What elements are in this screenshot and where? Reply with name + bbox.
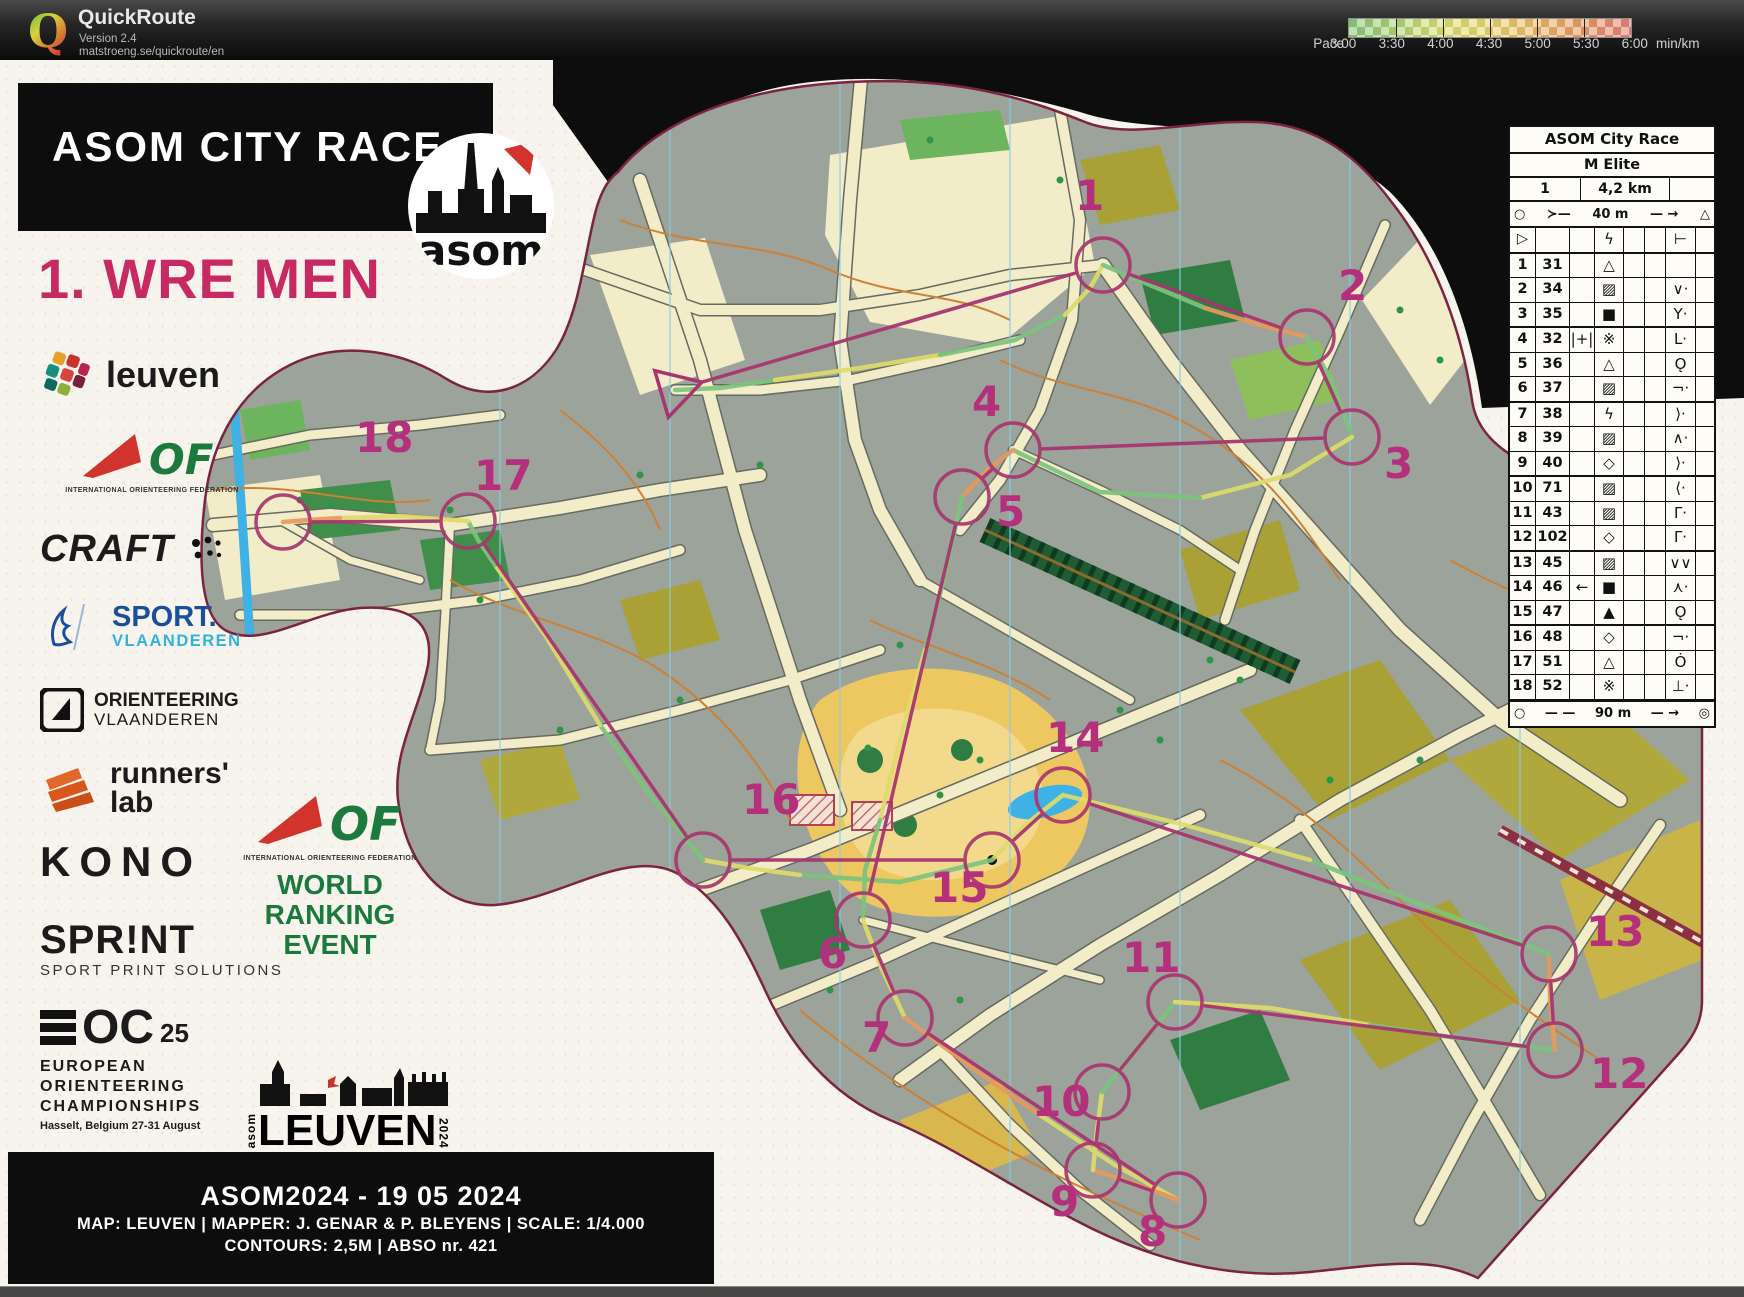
eoc-line-2: ORIENTEERING bbox=[40, 1077, 201, 1097]
pace-tick: 4:00 bbox=[1427, 36, 1453, 51]
sheet-course-length: 4,2 km bbox=[1581, 178, 1670, 200]
app-titlebar: Q QuickRoute Version 2.4 matstroeng.se/q… bbox=[0, 0, 1744, 60]
sheet-cell: 4 bbox=[1510, 328, 1536, 353]
sheet-cell bbox=[1696, 651, 1714, 676]
sheet-cell: 52 bbox=[1536, 675, 1570, 701]
sheet-cell: 7 bbox=[1510, 403, 1536, 428]
sheet-cell: 2 bbox=[1510, 278, 1536, 303]
sheet-cell bbox=[1570, 403, 1595, 428]
sheet-cell bbox=[1624, 502, 1645, 527]
sheet-cell bbox=[1645, 502, 1666, 527]
sheet-course-row: 1 4,2 km bbox=[1510, 178, 1714, 202]
sheet-cell bbox=[1645, 228, 1666, 254]
runners-lab-label-1: runners' bbox=[110, 760, 229, 789]
control-number: 8 bbox=[1138, 1207, 1167, 1256]
sheet-cell bbox=[1696, 254, 1714, 279]
iof-caption: INTERNATIONAL ORIENTEERING FEDERATION bbox=[62, 487, 242, 494]
start-fork-glyph: ≻— bbox=[1547, 207, 1571, 222]
sheet-cell: 38 bbox=[1536, 403, 1570, 428]
sheet-cell bbox=[1645, 278, 1666, 303]
sheet-cell: 16 bbox=[1510, 626, 1536, 651]
leuven-mosaic-icon bbox=[42, 350, 92, 400]
finish-circle-glyph: ○ bbox=[1514, 706, 1525, 721]
sheet-cell bbox=[1624, 254, 1645, 279]
sheet-cell: ← bbox=[1570, 576, 1595, 601]
sheet-cell bbox=[1696, 228, 1714, 254]
sheet-cell: 17 bbox=[1510, 651, 1536, 676]
orienteering-vlaanderen-label-1: ORIENTEERING bbox=[94, 691, 239, 711]
sheet-cell: ▨ bbox=[1595, 477, 1624, 502]
sheet-cell bbox=[1645, 328, 1666, 353]
sponsor-leuven: leuven bbox=[42, 350, 220, 400]
sheet-cell bbox=[1645, 675, 1666, 701]
app-url: matstroeng.se/quickroute/en bbox=[79, 46, 224, 58]
sponsor-runners-lab: runners' lab bbox=[44, 760, 229, 817]
sheet-cell: 10 bbox=[1510, 477, 1536, 502]
sheet-cell: 13 bbox=[1510, 552, 1536, 577]
sheet-cell bbox=[1696, 303, 1714, 329]
sheet-finish-distance-row: ○ — — 90 m — → ◎ bbox=[1510, 701, 1714, 726]
sheet-cell: 14 bbox=[1510, 576, 1536, 601]
eoc-sublabel: Hasselt, Belgium 27-31 August bbox=[40, 1120, 201, 1132]
sheet-cell bbox=[1624, 278, 1645, 303]
leuven-side-asom: asom bbox=[244, 1113, 258, 1148]
sheet-cell bbox=[1570, 254, 1595, 279]
control-number: 4 bbox=[972, 377, 1001, 426]
sheet-cell bbox=[1570, 452, 1595, 478]
sheet-cell: ▨ bbox=[1595, 502, 1624, 527]
sheet-cell: 12 bbox=[1510, 526, 1536, 552]
sheet-cell: ϟ bbox=[1595, 228, 1624, 254]
start-distance-value: 40 m bbox=[1592, 207, 1628, 222]
start-triangle-glyph: △ bbox=[1700, 207, 1710, 222]
course-leg bbox=[1096, 1122, 1098, 1140]
control-number: 15 bbox=[930, 863, 988, 912]
sheet-cell: 43 bbox=[1536, 502, 1570, 527]
sponsor-craft-label: CRAFT bbox=[40, 528, 174, 571]
sheet-cell bbox=[1570, 552, 1595, 577]
event-banner-title: ASOM CITY RACE bbox=[52, 123, 443, 171]
sheet-cell: 8 bbox=[1510, 427, 1536, 452]
app-title: QuickRoute bbox=[78, 6, 196, 30]
leuven-side-2024: 2024 bbox=[436, 1118, 450, 1149]
control-number: 6 bbox=[818, 929, 847, 978]
sheet-cell: ■ bbox=[1595, 576, 1624, 601]
sheet-cell: 47 bbox=[1536, 601, 1570, 627]
sheet-cell: 15 bbox=[1510, 601, 1536, 627]
eoc-line-1: EUROPEAN bbox=[40, 1057, 201, 1077]
finish-arrow-glyph: — → bbox=[1651, 706, 1679, 721]
sheet-cell: ※ bbox=[1595, 675, 1624, 701]
pace-tick: 5:00 bbox=[1524, 36, 1550, 51]
sheet-cell bbox=[1696, 552, 1714, 577]
sheet-cell bbox=[1696, 278, 1714, 303]
sheet-cell bbox=[1624, 477, 1645, 502]
sheet-cell: ▨ bbox=[1595, 427, 1624, 452]
sport-vlaanderen-label-2: VLAANDEREN bbox=[112, 632, 242, 652]
sheet-cell bbox=[1645, 477, 1666, 502]
sponsor-eoc25: OC 25 EUROPEAN ORIENTEERING CHAMPIONSHIP… bbox=[40, 1006, 201, 1132]
start-circle-glyph: ○ bbox=[1514, 207, 1525, 222]
sponsor-iof: OF INTERNATIONAL ORIENTEERING FEDERATION bbox=[62, 432, 242, 494]
sheet-cell: ∧· bbox=[1666, 427, 1696, 452]
sheet-cell bbox=[1570, 675, 1595, 701]
sheet-cell: ϟ bbox=[1595, 403, 1624, 428]
iof-logo-icon: OF bbox=[77, 432, 227, 480]
sheet-cell bbox=[1624, 601, 1645, 627]
sport-vlaanderen-label-1: SPORT. bbox=[112, 603, 242, 632]
map-credits-banner: ASOM2024 - 19 05 2024 MAP: LEUVEN | MAPP… bbox=[8, 1152, 714, 1284]
sheet-cell bbox=[1645, 601, 1666, 627]
sponsor-sport-vlaanderen: SPORT. VLAANDEREN bbox=[40, 598, 242, 656]
sheet-start-distance-row: ○ ≻— 40 m — → △ bbox=[1510, 202, 1714, 228]
finish-distance-value: 90 m bbox=[1595, 706, 1631, 721]
sheet-cell bbox=[1645, 526, 1666, 552]
sponsor-kono: KONO bbox=[40, 838, 202, 886]
sheet-cell bbox=[1570, 502, 1595, 527]
pace-tick-line bbox=[1396, 19, 1397, 37]
sheet-cell: ∨· bbox=[1666, 278, 1696, 303]
sheet-cell bbox=[1696, 675, 1714, 701]
orienteering-vlaanderen-icon bbox=[40, 688, 84, 732]
sheet-cell bbox=[1645, 552, 1666, 577]
sheet-cell: 45 bbox=[1536, 552, 1570, 577]
control-number: 18 bbox=[355, 413, 413, 462]
control-number: 5 bbox=[996, 487, 1025, 536]
sheet-cell: ⟩· bbox=[1666, 403, 1696, 428]
sheet-cell bbox=[1624, 377, 1645, 403]
eoc-line-3: CHAMPIONSHIPS bbox=[40, 1097, 201, 1117]
sheet-cell bbox=[1696, 353, 1714, 378]
sheet-cell: 6 bbox=[1510, 377, 1536, 403]
sheet-cell bbox=[1624, 353, 1645, 378]
pace-tick: 3:00 bbox=[1330, 36, 1356, 51]
control-number: 13 bbox=[1586, 907, 1644, 956]
svg-text:OF: OF bbox=[149, 435, 214, 480]
sheet-cell bbox=[1696, 626, 1714, 651]
wre-line-2: RANKING bbox=[238, 900, 422, 930]
sheet-cell: ⟩· bbox=[1666, 452, 1696, 478]
sheet-cell: 11 bbox=[1510, 502, 1536, 527]
sheet-cell: L· bbox=[1666, 328, 1696, 353]
asom-club-logo: asom bbox=[408, 133, 554, 279]
eoc-25-label: 25 bbox=[160, 1018, 189, 1049]
finish-ring-glyph: ◎ bbox=[1699, 706, 1710, 721]
sheet-title: ASOM City Race bbox=[1510, 127, 1714, 154]
pace-tick: 4:30 bbox=[1476, 36, 1502, 51]
start-arrow-glyph: — → bbox=[1650, 207, 1678, 222]
sheet-cell bbox=[1624, 651, 1645, 676]
sheet-cell: 18 bbox=[1510, 675, 1536, 701]
sheet-cell: ◇ bbox=[1595, 626, 1624, 651]
leuven-city-label: LEUVEN bbox=[258, 1113, 436, 1148]
sheet-cell bbox=[1696, 502, 1714, 527]
sheet-cell: 51 bbox=[1536, 651, 1570, 676]
craft-dots-icon bbox=[188, 535, 222, 565]
sheet-cell: ※ bbox=[1595, 328, 1624, 353]
sheet-cell bbox=[1570, 626, 1595, 651]
sheet-cell: △ bbox=[1595, 651, 1624, 676]
course-leg bbox=[1551, 984, 1553, 1020]
sheet-cell bbox=[1570, 477, 1595, 502]
sheet-cell: 31 bbox=[1536, 254, 1570, 279]
pace-tick: 6:00 bbox=[1622, 36, 1648, 51]
sheet-cell bbox=[1570, 228, 1595, 254]
sheet-cell: △ bbox=[1595, 254, 1624, 279]
credits-event-date: ASOM2024 - 19 05 2024 bbox=[200, 1181, 521, 1212]
svg-text:OF: OF bbox=[330, 797, 401, 848]
sheet-cell: ◇ bbox=[1595, 452, 1624, 478]
sheet-cell: Y· bbox=[1666, 303, 1696, 329]
sheet-cell bbox=[1645, 377, 1666, 403]
sheet-cell bbox=[1645, 353, 1666, 378]
sheet-cell: △ bbox=[1595, 353, 1624, 378]
control-number: 16 bbox=[742, 775, 800, 824]
sheet-cell: 102 bbox=[1536, 526, 1570, 552]
sheet-cell bbox=[1570, 303, 1595, 329]
sheet-cell bbox=[1696, 526, 1714, 552]
sheet-cell: 46 bbox=[1536, 576, 1570, 601]
sheet-cell bbox=[1624, 626, 1645, 651]
sheet-cell bbox=[1645, 254, 1666, 279]
pace-tick-labels: 3:003:304:004:305:005:306:00 bbox=[1330, 36, 1648, 51]
credits-map-info: MAP: LEUVEN | MAPPER: J. GENAR & P. BLEY… bbox=[77, 1215, 645, 1234]
control-number: 12 bbox=[1590, 1049, 1648, 1098]
sheet-cell: ■ bbox=[1595, 303, 1624, 329]
eoc-oc-label: OC bbox=[82, 1008, 154, 1049]
asom-skyline-icon: asom bbox=[408, 133, 554, 279]
sheet-cell: 34 bbox=[1536, 278, 1570, 303]
app-version: Version 2.4 bbox=[79, 33, 137, 45]
sheet-cell: 36 bbox=[1536, 353, 1570, 378]
pace-unit: min/km bbox=[1656, 36, 1700, 51]
sheet-cell bbox=[1696, 328, 1714, 353]
sheet-cell bbox=[1696, 377, 1714, 403]
sheet-cell: Ǫ bbox=[1666, 601, 1696, 627]
sheet-cell: ⟨· bbox=[1666, 477, 1696, 502]
sheet-cell bbox=[1645, 452, 1666, 478]
sheet-cell bbox=[1624, 675, 1645, 701]
pace-tick-line bbox=[1584, 19, 1585, 37]
sheet-cell: 1 bbox=[1510, 254, 1536, 279]
wre-line-3: EVENT bbox=[238, 930, 422, 960]
sheet-cell bbox=[1645, 303, 1666, 329]
sheet-cell bbox=[1645, 403, 1666, 428]
sponsor-craft: CRAFT bbox=[40, 528, 222, 571]
window-bottom-edge bbox=[0, 1286, 1744, 1297]
sheet-cell bbox=[1624, 526, 1645, 552]
sheet-cell bbox=[1645, 626, 1666, 651]
pace-tick: 3:30 bbox=[1379, 36, 1405, 51]
pace-tick-line bbox=[1443, 19, 1444, 37]
sheet-cell bbox=[1666, 254, 1696, 279]
sheet-cell bbox=[1536, 228, 1570, 254]
sheet-cell: 3 bbox=[1510, 303, 1536, 329]
wre-line-1: WORLD bbox=[238, 870, 422, 900]
pace-legend: Pace 3:003:304:004:305:005:306:00 min/km bbox=[1260, 0, 1730, 60]
sheet-cell: Ȯ bbox=[1666, 651, 1696, 676]
sheet-cell bbox=[1570, 526, 1595, 552]
pace-gradient-bar bbox=[1348, 18, 1632, 38]
runners-lab-label-2: lab bbox=[110, 789, 229, 818]
sprint-sublabel: SPORT PRINT SOLUTIONS bbox=[40, 962, 283, 979]
sheet-cell bbox=[1696, 576, 1714, 601]
control-number: 1 bbox=[1075, 171, 1104, 220]
sheet-cell bbox=[1570, 377, 1595, 403]
sheet-cell bbox=[1696, 452, 1714, 478]
sheet-cell bbox=[1624, 552, 1645, 577]
control-description-sheet: ASOM City Race M Elite 1 4,2 km ○ ≻— 40 … bbox=[1508, 125, 1716, 728]
sheet-cell: 37 bbox=[1536, 377, 1570, 403]
sheet-cell bbox=[1624, 427, 1645, 452]
sheet-cell bbox=[1624, 403, 1645, 428]
sheet-class: M Elite bbox=[1510, 154, 1714, 178]
sheet-cell bbox=[1696, 427, 1714, 452]
map-document-page: 123456789101112131415161718 ASOM CITY RA… bbox=[0, 60, 1744, 1296]
sheet-cell bbox=[1624, 303, 1645, 329]
sheet-cell: ▲ bbox=[1595, 601, 1624, 627]
sheet-cell: ∨∨ bbox=[1666, 552, 1696, 577]
leuven-skyline-icon bbox=[244, 1058, 456, 1108]
sheet-cell: ▨ bbox=[1595, 552, 1624, 577]
finish-dash-glyph: — — bbox=[1545, 706, 1576, 721]
sheet-cell: ⋏· bbox=[1666, 576, 1696, 601]
control-number: 10 bbox=[1032, 1077, 1090, 1126]
sheet-cell bbox=[1624, 576, 1645, 601]
sheet-cell bbox=[1645, 651, 1666, 676]
sheet-cell: 40 bbox=[1536, 452, 1570, 478]
leuven-2024-logo: asom LEUVEN 2024 bbox=[244, 1058, 456, 1148]
credits-contours-info: CONTOURS: 2,5M | ABSO nr. 421 bbox=[224, 1237, 497, 1256]
eoc-bars-icon bbox=[40, 1006, 76, 1049]
sheet-cell: ¬· bbox=[1666, 626, 1696, 651]
sheet-cell: ⊥· bbox=[1666, 675, 1696, 701]
sheet-cell bbox=[1624, 228, 1645, 254]
svg-text:Q: Q bbox=[28, 5, 68, 57]
sheet-course-number: 1 bbox=[1510, 178, 1581, 200]
course-leg bbox=[313, 521, 438, 522]
sponsor-orienteering-vlaanderen: ORIENTEERING VLAANDEREN bbox=[40, 688, 239, 732]
sheet-control-rows: ▷ϟ⊢131△234▨∨·335■Y·432|+|※L·536△Ǫ637▨¬·7… bbox=[1510, 228, 1714, 701]
pace-tick-line bbox=[1490, 19, 1491, 37]
sheet-cell: ⊢ bbox=[1666, 228, 1696, 254]
runners-lab-icon bbox=[44, 766, 94, 812]
sheet-course-climb bbox=[1670, 178, 1714, 200]
sheet-cell: 71 bbox=[1536, 477, 1570, 502]
control-number: 3 bbox=[1384, 439, 1413, 488]
sheet-cell: 48 bbox=[1536, 626, 1570, 651]
control-number: 14 bbox=[1046, 713, 1104, 762]
iof-big-caption: INTERNATIONAL ORIENTEERING FEDERATION bbox=[238, 855, 422, 862]
sheet-cell bbox=[1624, 328, 1645, 353]
iof-big-logo-icon: OF bbox=[250, 792, 410, 848]
pace-tick-line bbox=[1537, 19, 1538, 37]
quickroute-logo-icon: Q bbox=[26, 5, 72, 57]
sheet-cell: Γ· bbox=[1666, 526, 1696, 552]
sheet-cell bbox=[1570, 278, 1595, 303]
control-number: 9 bbox=[1050, 1177, 1079, 1226]
sheet-cell bbox=[1696, 403, 1714, 428]
control-number: 2 bbox=[1338, 261, 1367, 310]
pace-tick: 5:30 bbox=[1573, 36, 1599, 51]
course-title: 1. WRE MEN bbox=[38, 246, 381, 311]
sheet-cell bbox=[1570, 427, 1595, 452]
sheet-cell: Γ· bbox=[1666, 502, 1696, 527]
sheet-cell: ◇ bbox=[1595, 526, 1624, 552]
sheet-cell bbox=[1570, 651, 1595, 676]
sheet-cell: ¬· bbox=[1666, 377, 1696, 403]
sheet-cell: 32 bbox=[1536, 328, 1570, 353]
sheet-cell: ▨ bbox=[1595, 278, 1624, 303]
world-ranking-event-block: OF INTERNATIONAL ORIENTEERING FEDERATION… bbox=[238, 792, 422, 961]
sheet-cell bbox=[1570, 353, 1595, 378]
sheet-cell: ▨ bbox=[1595, 377, 1624, 403]
sheet-cell: |+| bbox=[1570, 328, 1595, 353]
control-number: 17 bbox=[474, 451, 532, 500]
sheet-cell bbox=[1645, 576, 1666, 601]
sponsor-leuven-label: leuven bbox=[106, 354, 220, 396]
sheet-cell bbox=[1624, 452, 1645, 478]
control-number: 11 bbox=[1122, 933, 1180, 982]
control-number: 7 bbox=[862, 1013, 891, 1062]
sheet-cell bbox=[1570, 601, 1595, 627]
sheet-cell bbox=[1645, 427, 1666, 452]
sheet-cell: 35 bbox=[1536, 303, 1570, 329]
sheet-cell: 9 bbox=[1510, 452, 1536, 478]
sport-vlaanderen-lion-icon bbox=[40, 598, 98, 656]
sheet-cell: 39 bbox=[1536, 427, 1570, 452]
sheet-cell bbox=[1696, 477, 1714, 502]
sheet-cell: ▷ bbox=[1510, 228, 1536, 254]
orienteering-vlaanderen-label-2: VLAANDEREN bbox=[94, 711, 239, 730]
sheet-cell: Ǫ bbox=[1666, 353, 1696, 378]
sheet-cell: 5 bbox=[1510, 353, 1536, 378]
sheet-cell bbox=[1696, 601, 1714, 627]
